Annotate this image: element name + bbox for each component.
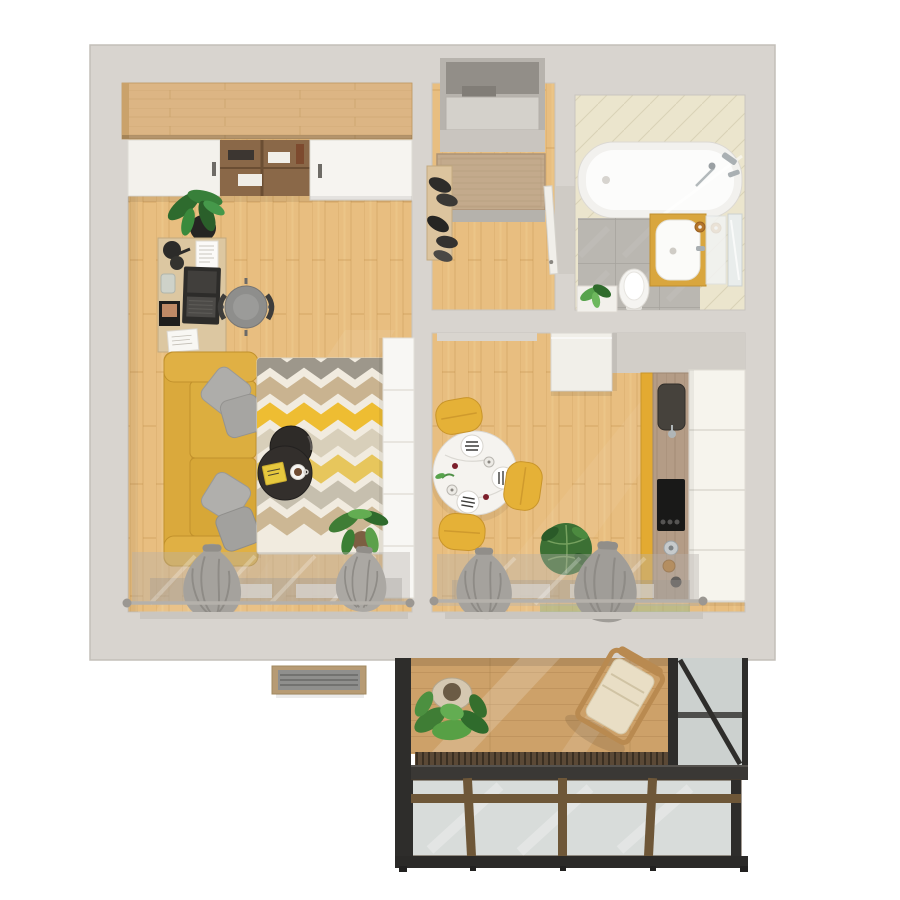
tub-drain [602, 176, 610, 184]
glass-stem [451, 489, 454, 492]
doorway-threshold [437, 333, 537, 341]
laptop [182, 266, 221, 324]
bottom-beam [395, 856, 748, 868]
sofa-armrest [164, 352, 258, 382]
kitchen-sink [658, 384, 685, 430]
yellow-book [262, 462, 286, 485]
glass-roof [403, 778, 741, 858]
plant-stand [577, 282, 617, 312]
roof-crossbar [403, 794, 741, 803]
mirror-reflection [706, 216, 726, 284]
roof-rail [558, 778, 567, 858]
floor-plan-render [0, 0, 900, 900]
door-handle [212, 162, 216, 176]
sliding-door-left [128, 140, 220, 196]
document [167, 329, 199, 353]
sink-drain [670, 248, 677, 255]
wardrobe [122, 83, 412, 202]
left-frame-post [395, 658, 411, 856]
rod-finial [699, 597, 708, 606]
dining-chair [438, 512, 486, 551]
entry-vent [462, 86, 496, 97]
glass-stem [488, 461, 491, 464]
roof-frame [731, 780, 741, 856]
bathroom-door-opening [555, 186, 575, 274]
berry-bowl [483, 494, 489, 500]
glazing-rail [668, 712, 748, 718]
rod-finial [123, 599, 132, 608]
kettle-lid [669, 546, 674, 551]
entry-door-leaf [446, 97, 539, 130]
sink-basin [656, 220, 700, 280]
tile-strip [437, 210, 545, 222]
ac-unit [272, 666, 366, 698]
water-glass [161, 274, 175, 293]
photo-frame [159, 301, 180, 326]
paper-sheet [196, 241, 218, 268]
sink-faucet [696, 246, 705, 251]
floor-plan-canvas [0, 0, 900, 900]
living-room [122, 83, 415, 619]
vent-grille [415, 752, 668, 766]
cooktop-knobs [661, 520, 680, 525]
entry-door [440, 58, 545, 152]
kitchen [430, 333, 746, 624]
work-desk [158, 238, 226, 352]
berry-bowl [452, 463, 458, 469]
door-handle [318, 164, 322, 178]
sofa [164, 352, 266, 566]
toilet [619, 269, 649, 310]
wardrobe-floor-shadow [128, 196, 412, 202]
wardrobe-edge-shadow [122, 135, 412, 139]
entry-threshold [440, 130, 545, 152]
bathtub [578, 142, 742, 218]
sliding-door-right [310, 140, 412, 200]
mirror [706, 214, 742, 286]
rod-finial [406, 599, 415, 608]
wardrobe-side [122, 83, 129, 139]
glazing-beam [395, 766, 748, 780]
window-sill [140, 612, 408, 619]
bathroom [575, 95, 745, 312]
ac-shadow [276, 694, 364, 698]
plate [461, 435, 483, 457]
window-sill [445, 612, 703, 619]
sofa-backrest [164, 352, 192, 566]
rod-finial [430, 597, 439, 606]
side-glazing [668, 658, 748, 766]
wardrobe-top [122, 83, 412, 139]
balcony [395, 639, 748, 872]
chair-cushion [233, 294, 259, 320]
pot-soil [443, 683, 461, 701]
kitchen-back-wall [612, 333, 745, 373]
hallway [424, 58, 575, 310]
fridge [551, 333, 617, 396]
